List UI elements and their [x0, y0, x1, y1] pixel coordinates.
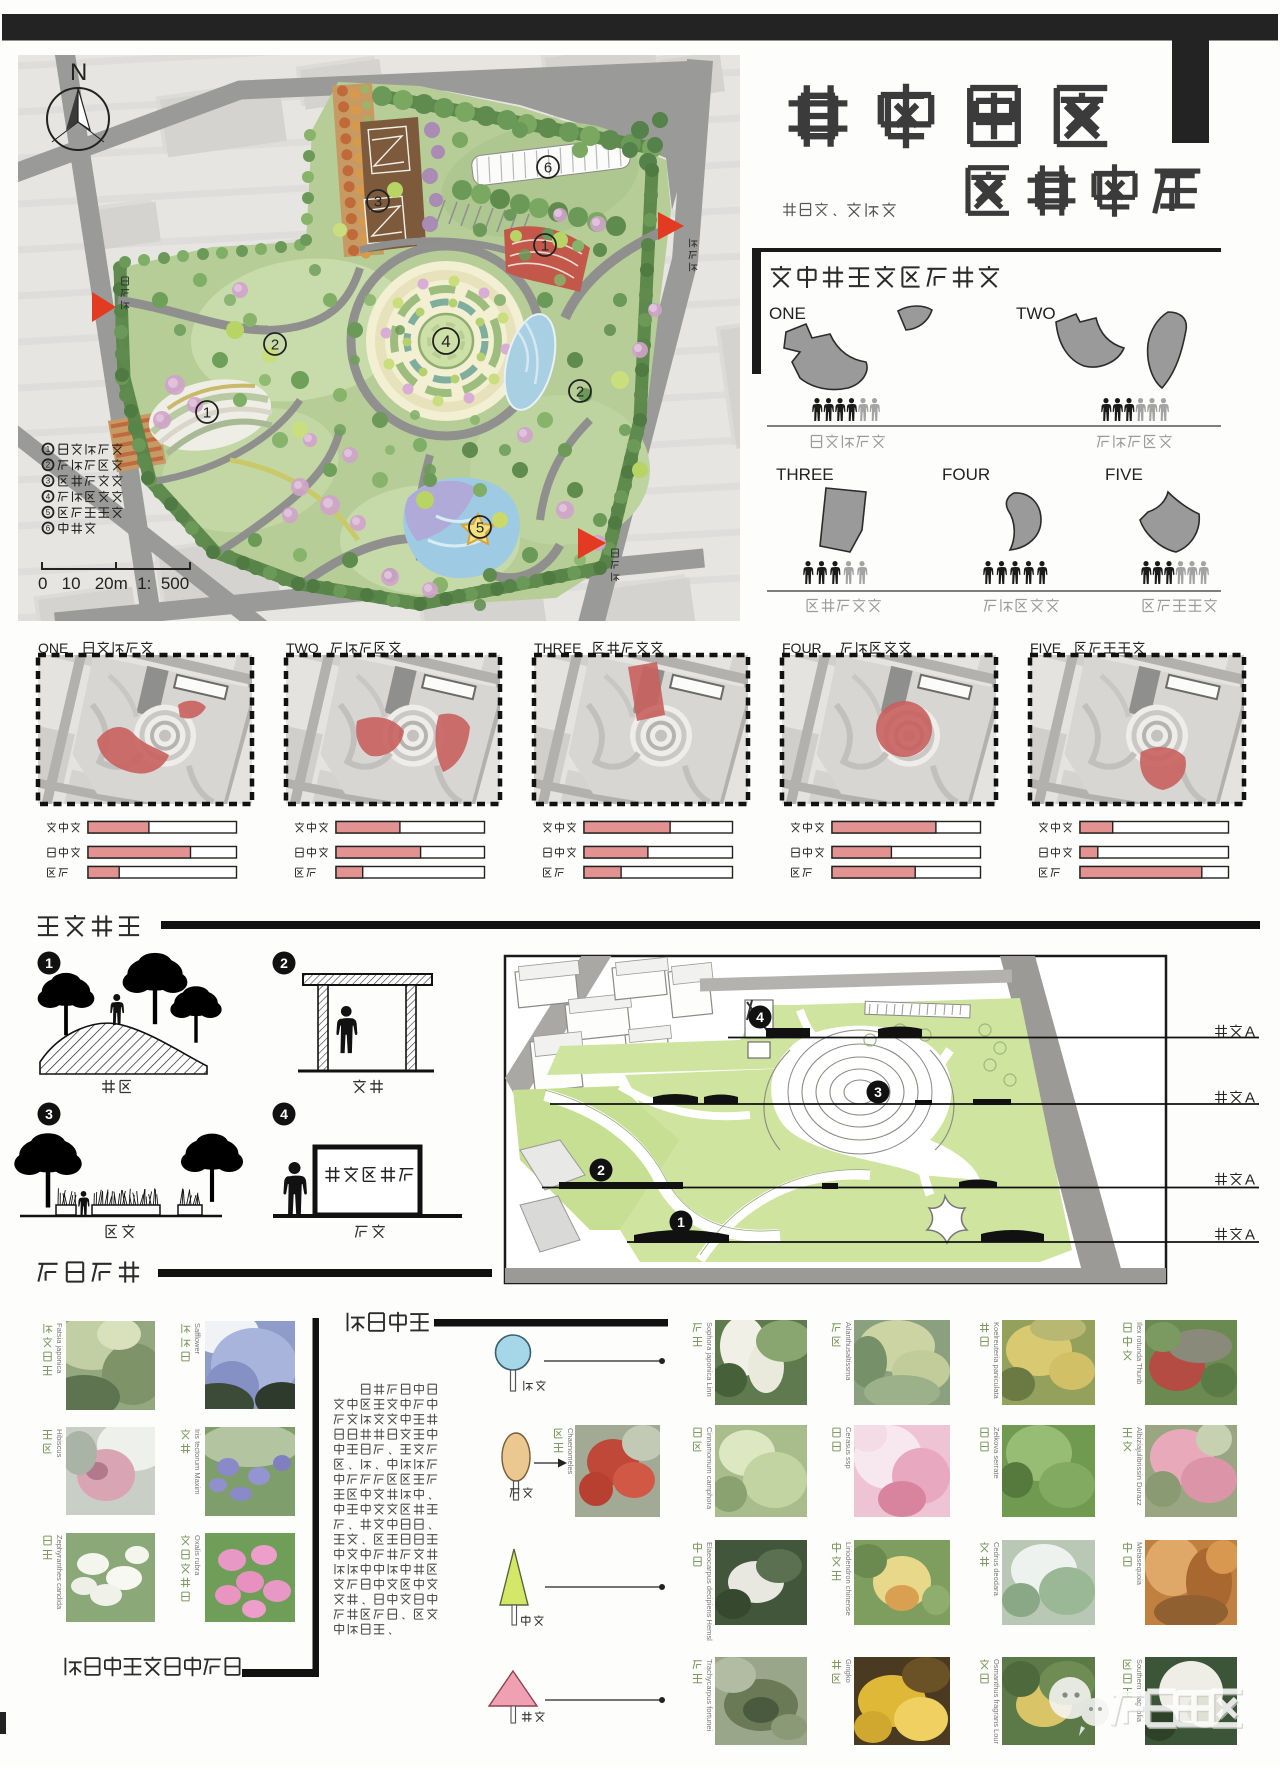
svg-text:4: 4	[441, 332, 450, 351]
svg-text:Zelkova serrate: Zelkova serrate	[992, 1427, 1001, 1479]
svg-text:Gingko: Gingko	[844, 1659, 853, 1683]
svg-text:1: 1	[541, 237, 549, 254]
svg-text:FIVE: FIVE	[1105, 465, 1143, 484]
svg-text:ONE: ONE	[769, 304, 806, 323]
svg-text:Southern magnolia: Southern magnolia	[1135, 1659, 1144, 1723]
svg-text:Cinnamomum camphora: Cinnamomum camphora	[705, 1427, 714, 1510]
svg-text:Chaenomeles: Chaenomeles	[566, 1428, 575, 1475]
svg-text:5: 5	[46, 508, 51, 517]
svg-text:2: 2	[597, 1162, 605, 1178]
svg-text:4: 4	[756, 1009, 764, 1025]
svg-text:1: 1	[203, 404, 211, 421]
svg-text:Hibiscus: Hibiscus	[55, 1429, 64, 1458]
svg-text:FOUR: FOUR	[942, 465, 990, 484]
svg-text:THREE: THREE	[776, 465, 834, 484]
svg-text:3: 3	[45, 1106, 53, 1122]
svg-text:Elaeocarpus decipiens Hemsl: Elaeocarpus decipiens Hemsl	[705, 1542, 714, 1641]
svg-text:5: 5	[476, 519, 484, 536]
svg-text:Safflower: Safflower	[193, 1323, 202, 1355]
svg-text:Fatsia japonica: Fatsia japonica	[55, 1323, 64, 1374]
svg-text:4: 4	[46, 492, 51, 501]
svg-text:Metasequoia: Metasequoia	[1135, 1542, 1144, 1586]
svg-text:TWO: TWO	[1016, 304, 1056, 323]
svg-text:Iris tectorum Maxim: Iris tectorum Maxim	[193, 1429, 202, 1494]
svg-text:4: 4	[280, 1106, 288, 1122]
svg-text:Oxalis rubra: Oxalis rubra	[193, 1535, 202, 1576]
svg-text:Sophora japonica Linn: Sophora japonica Linn	[705, 1322, 714, 1397]
svg-text:Zephyranthes candida: Zephyranthes candida	[55, 1535, 64, 1610]
svg-text:A: A	[1245, 1172, 1255, 1189]
svg-text:2: 2	[46, 461, 51, 470]
svg-text:1: 1	[45, 955, 53, 971]
svg-text:A: A	[1245, 1090, 1255, 1107]
svg-text:Albiziajulibrissin Durazz: Albiziajulibrissin Durazz	[1135, 1427, 1144, 1506]
svg-text:6: 6	[544, 159, 552, 176]
svg-text:Liriodendron chinense: Liriodendron chinense	[844, 1542, 853, 1616]
svg-text:2: 2	[271, 336, 279, 353]
svg-text:Cedrus deodara: Cedrus deodara	[992, 1542, 1001, 1597]
svg-text:1: 1	[46, 445, 51, 454]
svg-text:Trachycarpus fortunei: Trachycarpus fortunei	[705, 1659, 714, 1732]
svg-text:2: 2	[280, 955, 288, 971]
svg-text:Koelreuteria paniculata: Koelreuteria paniculata	[992, 1322, 1001, 1400]
svg-text:2: 2	[576, 383, 584, 400]
svg-text:N: N	[70, 59, 87, 86]
svg-text:A: A	[1245, 1227, 1255, 1244]
svg-text:3: 3	[874, 1084, 882, 1100]
svg-text:1: 1	[677, 1214, 685, 1230]
svg-text:Cerasus ssp: Cerasus ssp	[844, 1427, 853, 1469]
svg-text:3: 3	[374, 193, 382, 210]
svg-text:A: A	[1245, 1024, 1255, 1041]
svg-text:0 10 20m 1: 500: 0 10 20m 1: 500	[38, 574, 189, 593]
svg-text:Ilex rotunda Thunb: Ilex rotunda Thunb	[1135, 1322, 1144, 1384]
svg-text:6: 6	[46, 524, 51, 533]
svg-text:Ailanthusaltissma: Ailanthusaltissma	[844, 1322, 853, 1381]
svg-text:Osmanthus fragrans Lour: Osmanthus fragrans Lour	[992, 1659, 1001, 1745]
svg-text:3: 3	[46, 476, 51, 485]
